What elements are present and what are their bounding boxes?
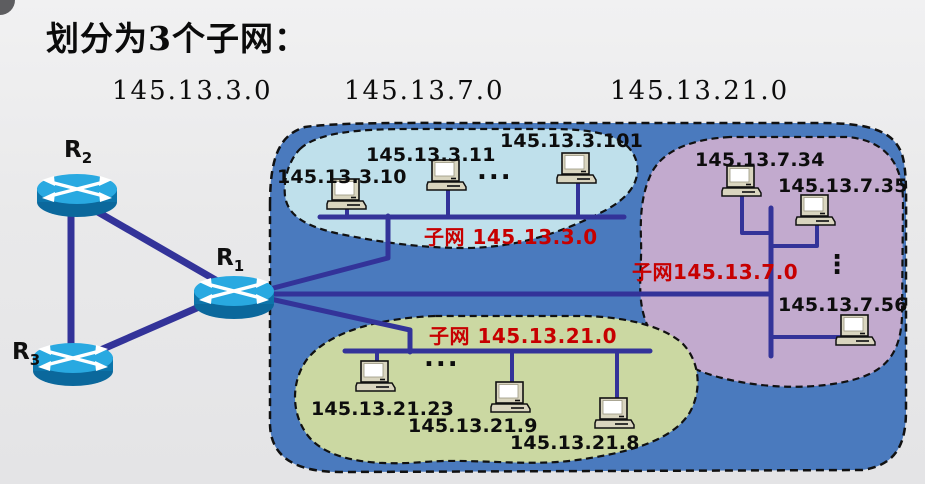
subnet-label-145-13-7-0: 子网145.13.7.0	[632, 256, 798, 285]
slide: 划分为3个子网： 145.13.3.0 145.13.7.0 145.13.21…	[0, 0, 925, 484]
host-label: 145.13.21.8	[510, 432, 640, 454]
router-label-r1: R1	[216, 245, 244, 275]
host-label: 145.13.7.56	[778, 294, 908, 316]
heading-subnet-1: 145.13.3.0	[112, 76, 273, 106]
router-icon-r2	[37, 174, 117, 217]
ellipsis-hosts-subnet21: ...	[424, 345, 460, 371]
page-title: 划分为3个子网：	[46, 12, 308, 60]
page-corner-decoration	[0, 0, 15, 15]
host-label: 145.13.3.10	[277, 166, 407, 188]
ellipsis-hosts-subnet7: ⋮	[824, 260, 836, 272]
heading-subnet-3: 145.13.21.0	[610, 76, 789, 106]
link-r2-r1	[84, 204, 226, 286]
router-icon-r3	[33, 343, 113, 386]
host-label: 145.13.3.101	[500, 130, 643, 152]
router-label-r3: R3	[12, 339, 40, 369]
subnet-label-145-13-3-0: 子网 145.13.3.0	[424, 221, 598, 250]
router-label-r2: R2	[64, 137, 92, 167]
ellipsis-hosts-subnet3: ...	[477, 158, 513, 184]
router-icon-r1	[194, 276, 274, 319]
host-label: 145.13.7.34	[695, 149, 825, 171]
heading-subnet-2: 145.13.7.0	[344, 76, 505, 106]
host-label: 145.13.7.35	[778, 175, 908, 197]
